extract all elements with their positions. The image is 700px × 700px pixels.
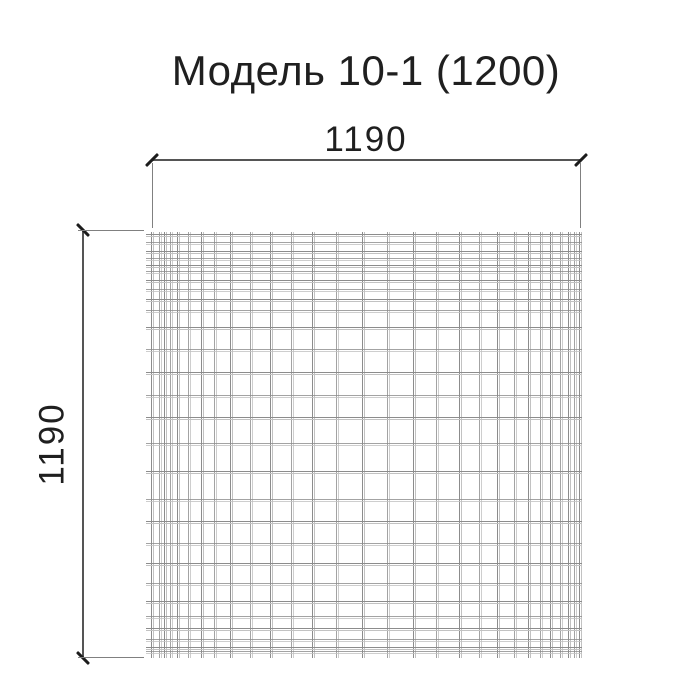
extension-line — [580, 163, 581, 228]
mesh-wire-horizontal — [146, 372, 582, 375]
mesh-wire-horizontal — [146, 310, 582, 313]
mesh-wire-horizontal — [146, 543, 582, 546]
extension-line — [78, 657, 144, 658]
mesh-wire-horizontal — [146, 417, 582, 420]
mesh-wire-horizontal — [146, 639, 582, 642]
mesh-wire-horizontal — [146, 563, 582, 566]
mesh-wire-horizontal — [146, 327, 582, 330]
extension-line — [152, 163, 153, 228]
dimension-width-line — [151, 159, 581, 161]
extension-line — [78, 230, 144, 231]
mesh-wire-horizontal — [146, 271, 582, 274]
mesh-wire-horizontal — [146, 499, 582, 502]
mesh-wire-horizontal — [146, 647, 582, 650]
mesh-wire-horizontal — [146, 651, 582, 654]
diagram-canvas: Модель 10-1 (1200) 1190 1190 — [0, 0, 700, 700]
diagram-title: Модель 10-1 (1200) — [152, 48, 580, 94]
mesh-wire-horizontal — [146, 258, 582, 261]
mesh-wire-horizontal — [146, 265, 582, 268]
dimension-height-line — [82, 229, 84, 659]
mesh-wire-horizontal — [146, 280, 582, 283]
mesh-wire-horizontal — [146, 242, 582, 245]
dimension-height-label: 1190 — [35, 402, 70, 485]
mesh-wire-horizontal — [146, 251, 582, 254]
mesh-wire-horizontal — [146, 616, 582, 619]
mesh-wire-horizontal — [146, 289, 582, 292]
mesh-wire-horizontal — [146, 583, 582, 586]
mesh-grid — [152, 235, 580, 652]
mesh-wire-horizontal — [146, 521, 582, 524]
mesh-wire-horizontal — [146, 395, 582, 398]
mesh-wire-horizontal — [146, 628, 582, 631]
mesh-wire-horizontal — [146, 349, 582, 352]
mesh-wire-horizontal — [146, 471, 582, 474]
mesh-wire-horizontal — [146, 234, 582, 237]
mesh-wire-horizontal — [146, 299, 582, 302]
mesh-wire-horizontal — [146, 443, 582, 446]
mesh-wire-horizontal — [146, 601, 582, 604]
dimension-width-label: 1190 — [152, 122, 580, 157]
